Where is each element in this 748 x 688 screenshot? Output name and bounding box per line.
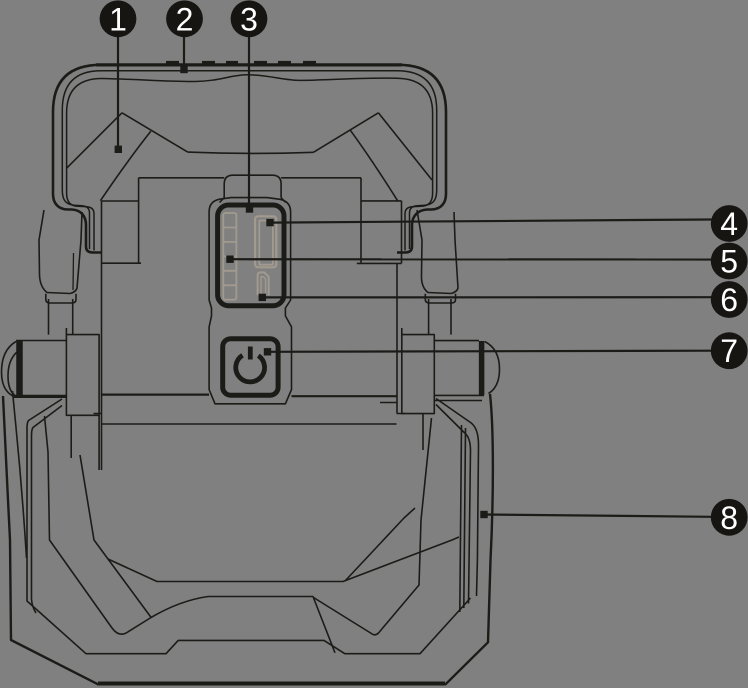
svg-text:8: 8: [720, 500, 738, 536]
svg-text:5: 5: [720, 244, 738, 280]
svg-text:3: 3: [240, 1, 258, 37]
svg-text:2: 2: [176, 1, 194, 37]
svg-text:6: 6: [720, 282, 738, 318]
svg-text:1: 1: [109, 1, 127, 37]
svg-text:4: 4: [720, 206, 738, 242]
svg-text:7: 7: [720, 333, 738, 369]
